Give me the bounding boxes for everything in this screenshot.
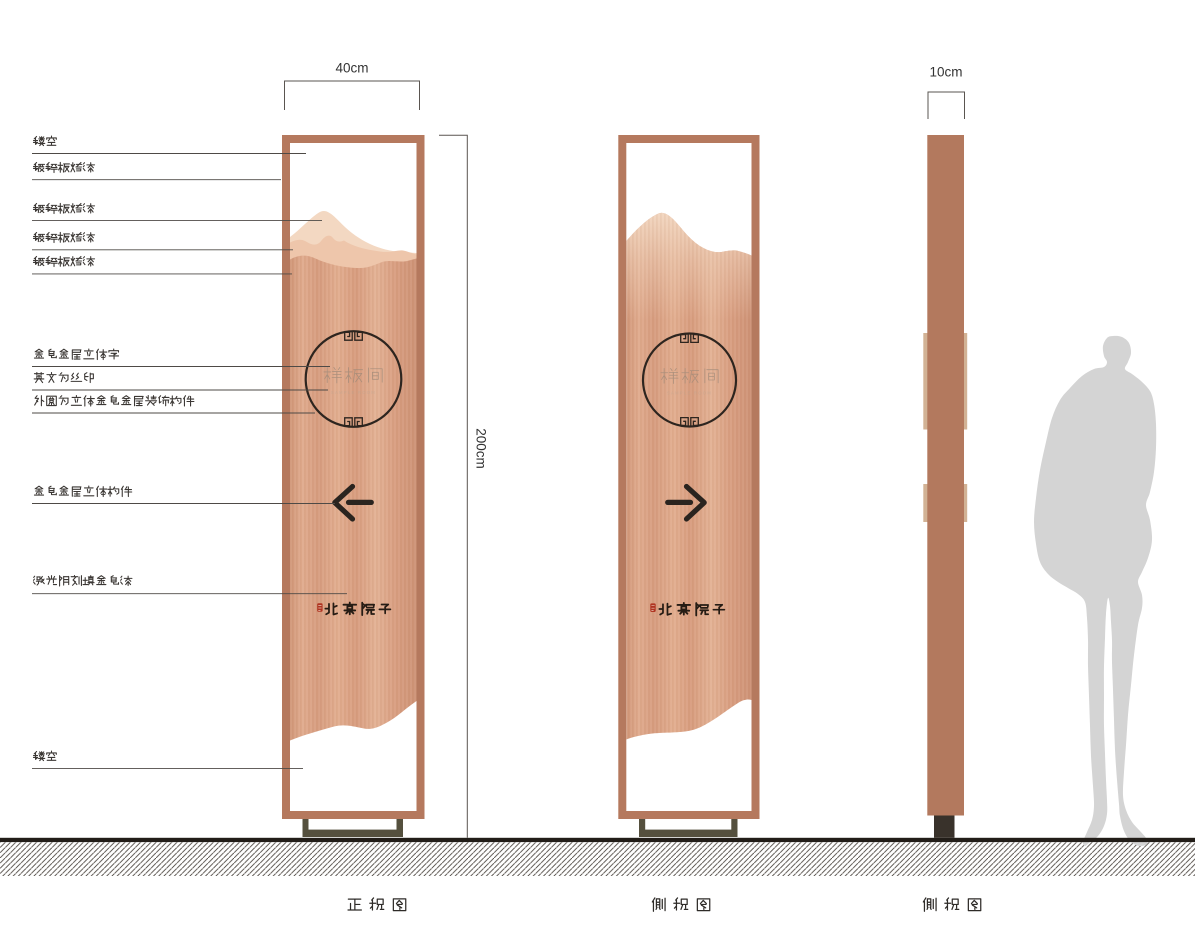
svg-text:200cm: 200cm: [474, 428, 489, 469]
svg-text:10cm: 10cm: [929, 65, 962, 80]
svg-text:SAMPLE ROOM: SAMPLE ROOM: [331, 390, 376, 395]
svg-text:SAMPLE ROOM: SAMPLE ROOM: [667, 391, 712, 396]
svg-text:40cm: 40cm: [335, 61, 368, 76]
